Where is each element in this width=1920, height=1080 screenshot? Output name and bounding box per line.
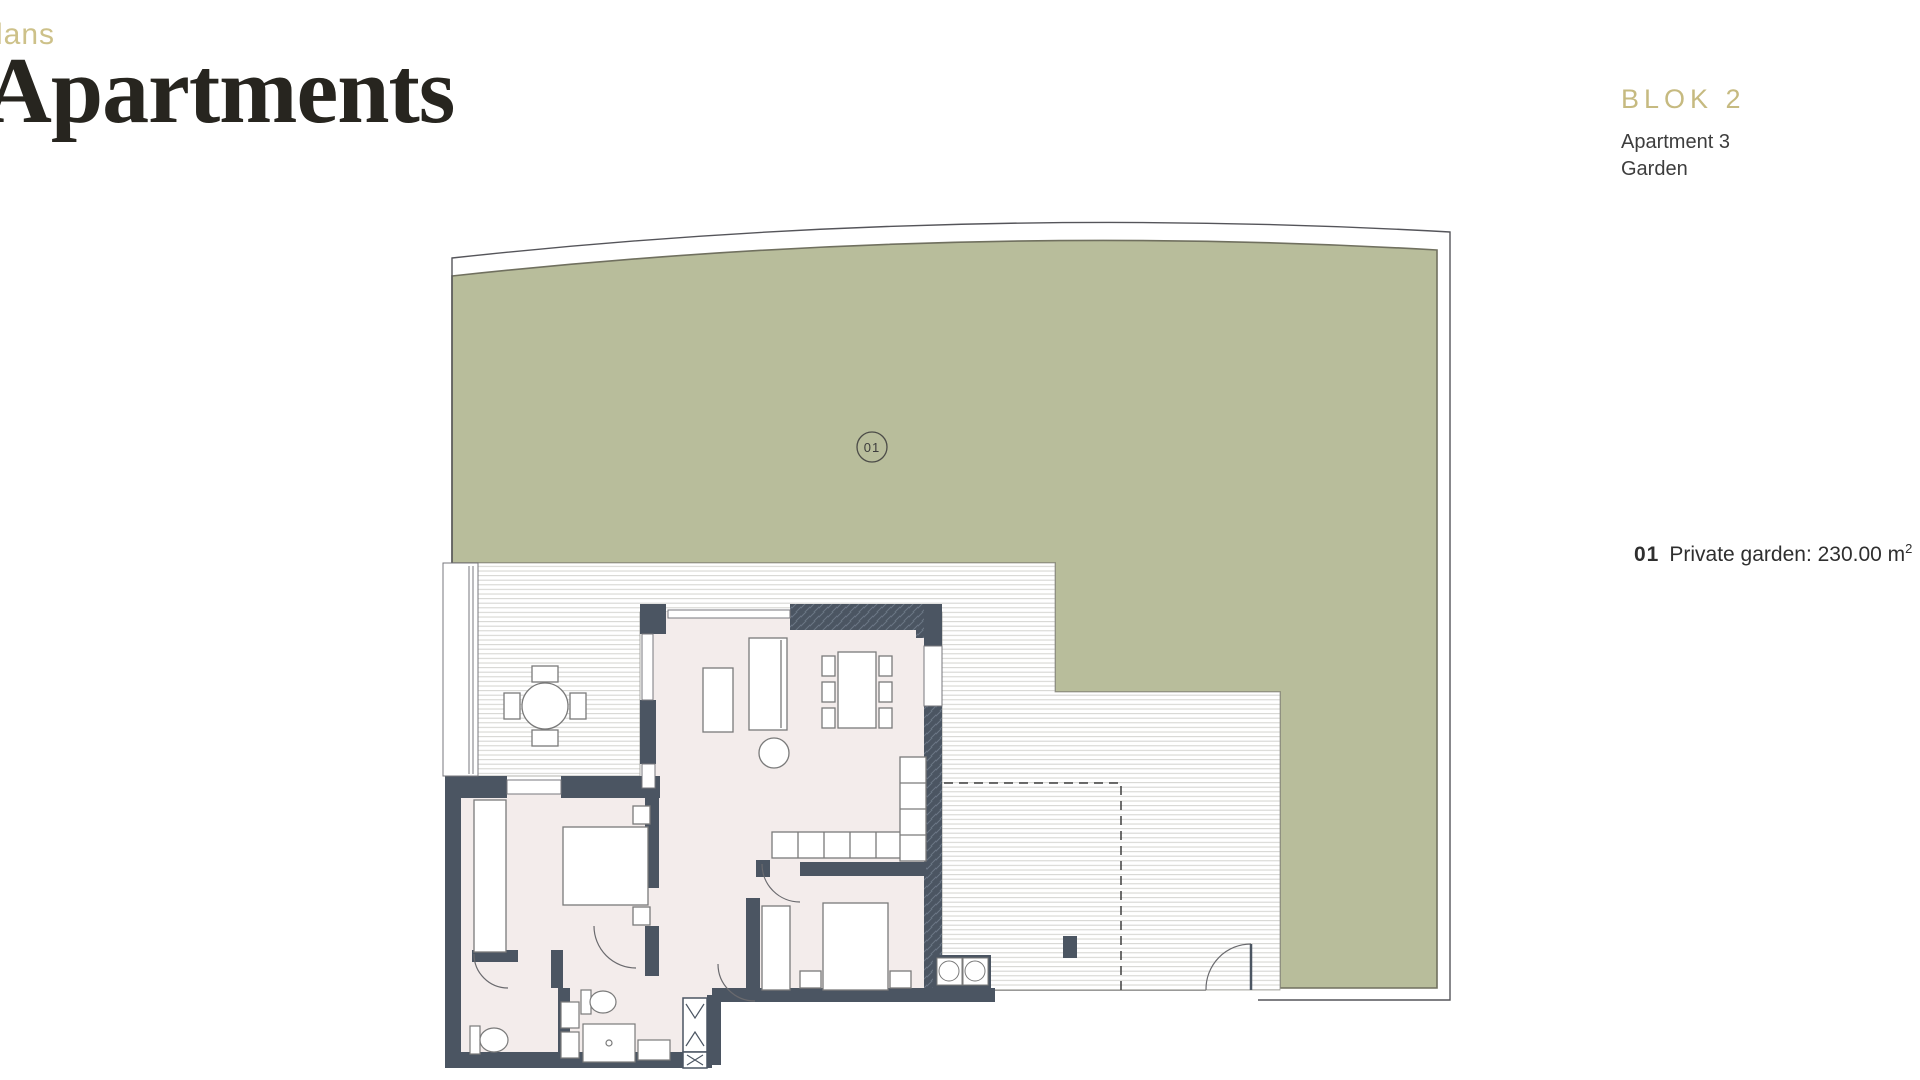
unit-type-label: Garden [1621, 156, 1746, 183]
dining-chair [879, 656, 892, 676]
wardrobe [474, 800, 506, 952]
dining-chair [822, 682, 835, 702]
terrace-round-table [522, 683, 568, 729]
wardrobe [762, 906, 790, 990]
toilet-tank [470, 1026, 480, 1054]
washing-machine [638, 1040, 670, 1060]
dining-chair [822, 708, 835, 728]
dining-chair [822, 656, 835, 676]
vanity-unit [561, 1002, 579, 1028]
bbq-unit [933, 955, 991, 988]
block-label: BLOK 2 [1621, 84, 1746, 115]
legend-item-text: Private garden: 230.00 m [1669, 543, 1905, 566]
shower-drain [606, 1040, 612, 1046]
ventilation-shaft [683, 998, 707, 1068]
bed [563, 827, 648, 905]
bed [823, 903, 888, 990]
apartment-label: Apartment 3 [1621, 129, 1746, 156]
legend-private-garden: 01Private garden: 230.00 m2 [1634, 541, 1912, 567]
page-title: Apartments [0, 40, 454, 143]
terrace-chair [532, 666, 558, 682]
garden-number-text: 01 [864, 440, 880, 455]
legend-item-number: 01 [1634, 543, 1659, 566]
sofa-small [703, 668, 733, 732]
toilet-bowl [590, 991, 616, 1013]
nightstand [890, 971, 911, 988]
kitchen-counter [772, 832, 902, 858]
nightstand [633, 806, 650, 824]
legend-unit-superscript: 2 [1905, 541, 1912, 556]
plan-info: BLOK 2 Apartment 3 Garden [1621, 84, 1746, 183]
dining-table [838, 652, 876, 728]
dining-chair [879, 708, 892, 728]
brochure-page: lans Apartments BLOK 2 Apartment 3 Garde… [0, 0, 1920, 1080]
nightstand [800, 971, 821, 988]
toilet-bowl [480, 1028, 508, 1052]
vanity-unit [561, 1032, 579, 1058]
terrace-chair [570, 693, 586, 719]
nightstand [633, 907, 650, 925]
dining-chair [879, 682, 892, 702]
coffee-table [759, 738, 789, 768]
terrace-chair [504, 693, 520, 719]
terrace-chair [532, 730, 558, 746]
